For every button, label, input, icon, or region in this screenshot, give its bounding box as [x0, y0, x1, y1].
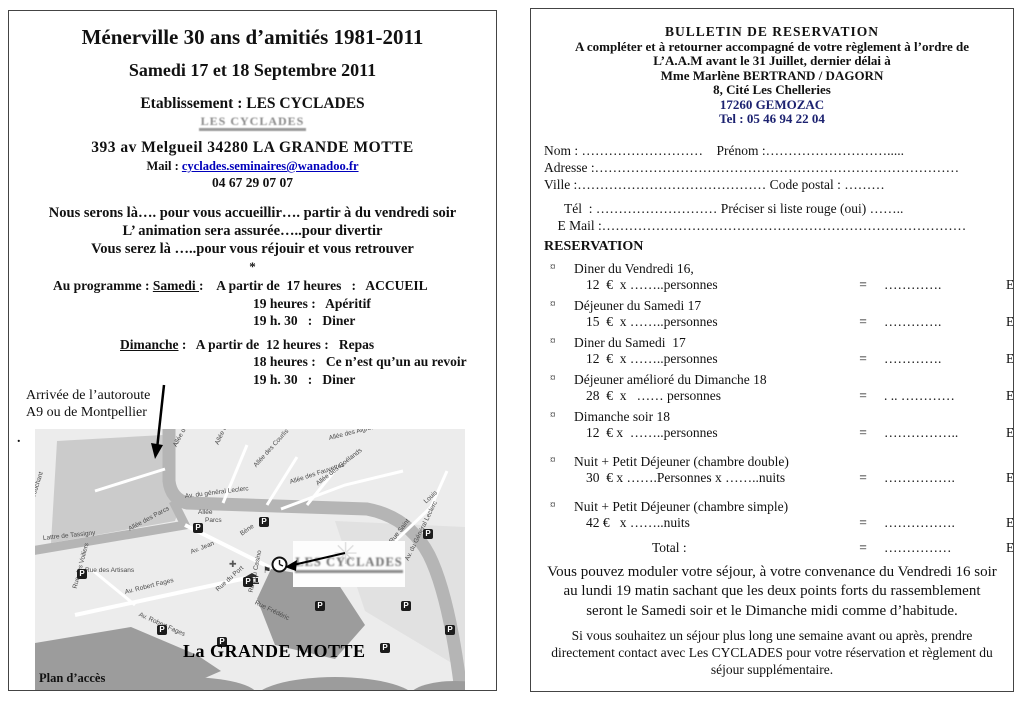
item-label-row: ¤Diner du Samedi 17: [544, 335, 1000, 351]
program-text: Dimanche: [120, 337, 179, 352]
program-text: 18 heures : Ce n’est qu’un au revoir: [253, 354, 467, 369]
item-value-row: 12 € x ……..personnes=………….Euros: [544, 351, 1000, 367]
program-text: : A partir de 17 heures : ACCUEIL: [199, 278, 428, 293]
item-value-row: 42 € x ……..nuits=…………….Euros: [544, 515, 1000, 531]
program-text: 19 h. 30 : Diner: [253, 313, 355, 328]
amount-dots: ………….: [884, 351, 1006, 367]
arrival-line: A9 ou de Montpellier: [26, 404, 150, 421]
equals-sign: =: [842, 470, 884, 486]
street-label: Allée: [198, 509, 212, 516]
access-map: ✚ ⚑ ✳ LES CYCLADES La GRANDE MOTTE Plan …: [35, 429, 465, 691]
amount-dots: ……………..: [884, 425, 1006, 441]
mail-line: Mail : cyclades.seminaires@wanadoo.fr: [25, 159, 480, 174]
program-row: 18 heures : Ce n’est qu’un au revoir: [25, 353, 480, 371]
item-value-row: 15 € x ……..personnes=………….Euros: [544, 314, 1000, 330]
amount-dots: ………….: [884, 277, 1006, 293]
item-label: Déjeuner du Samedi 17: [574, 298, 1006, 314]
program-row: 19 h. 30 : Diner: [25, 312, 480, 330]
item-label-row: ¤Diner du Vendredi 16,: [544, 261, 1000, 277]
street-label: Rue des Artisans: [85, 567, 134, 574]
parking-icon: P: [77, 569, 87, 579]
map-caption: Plan d’accès: [39, 671, 105, 686]
cyclades-map-callout: ✳ LES CYCLADES: [293, 541, 405, 587]
item-label: Dimanche soir 18: [574, 409, 1006, 425]
currency-label: Euros: [1006, 388, 1014, 404]
venue-address: 393 av Melgueil 34280 LA GRANDE MOTTE: [25, 139, 480, 157]
parking-icon: P: [315, 601, 325, 611]
header-line: BULLETIN DE RESERVATION: [544, 25, 1000, 40]
right-page: BULLETIN DE RESERVATIONA compléter et à …: [530, 8, 1014, 692]
event-title: Ménerville 30 ans d’amitiés 1981-2011: [25, 25, 480, 50]
venue-phone: 04 67 29 07 07: [25, 175, 480, 191]
item-quantity: 12 € x ……..personnes: [574, 425, 842, 441]
program-row: 19 heures : Apéritif: [25, 295, 480, 313]
reservation-item: ¤Dimanche soir 1812 € x ……..personnes=………: [544, 409, 1000, 441]
currency-label: Euros: [1006, 351, 1014, 367]
intro-paragraph: Nous serons là…. pour vous accueillir…. …: [25, 204, 480, 258]
closing-paragraph-2: Si vous souhaitez un séjour plus long un…: [544, 627, 1000, 678]
reservation-item: ¤Nuit + Petit Déjeuner (chambre double)3…: [544, 454, 1000, 486]
parking-icon: P: [380, 643, 390, 653]
equals-sign: =: [842, 515, 884, 531]
currency-label: Euros: [1006, 425, 1014, 441]
currency-label: Euros: [1006, 470, 1014, 486]
program-schedule: Au programme : Samedi : A partir de 17 h…: [25, 277, 480, 388]
currency-label: Euros: [1006, 515, 1014, 531]
currency-label: Euros: [1006, 277, 1014, 293]
event-dates: Samedi 17 et 18 Septembre 2011: [25, 60, 480, 81]
item-value-row: 12 € x ……..personnes=………….Euros: [544, 277, 1000, 293]
amount-dots: ……………: [884, 540, 1006, 556]
intro-line: Nous serons là…. pour vous accueillir…. …: [25, 204, 480, 222]
closing-paragraph-1: Vous pouvez moduler votre séjour, à votr…: [544, 563, 1000, 622]
header-line: Mme Marlène BERTRAND / DAGORN: [544, 69, 1000, 84]
reservation-heading: RESERVATION: [544, 239, 1000, 255]
stray-dot: .: [17, 431, 21, 447]
street-label: Parcs: [205, 517, 222, 524]
map-city-label: La GRANDE MOTTE: [183, 641, 366, 662]
amount-dots: ………….: [884, 314, 1006, 330]
item-bullet: ¤: [544, 409, 574, 425]
item-quantity: 28 € x …… personnes: [574, 388, 842, 404]
cross-icon: ✚: [229, 559, 237, 570]
item-label: Déjeuner amélioré du Dimanche 18: [574, 372, 1006, 388]
reservation-item: ¤Nuit + Petit Déjeuner (chambre simple)4…: [544, 499, 1000, 531]
item-label: Nuit + Petit Déjeuner (chambre simple): [574, 499, 1006, 515]
equals-sign: =: [842, 351, 884, 367]
equals-sign: =: [842, 388, 884, 404]
header-line: A compléter et à retourner accompagné de…: [544, 40, 1000, 55]
reservation-item: ¤Déjeuner amélioré du Dimanche 1828 € x …: [544, 372, 1000, 404]
item-spacer: [544, 314, 574, 330]
equals-sign: =: [842, 540, 884, 556]
item-quantity: 12 € x ……..personnes: [574, 277, 842, 293]
amount-dots: . .. …………: [884, 388, 1006, 404]
program-text: : A partir de 12 heures : Repas: [179, 337, 375, 352]
parking-icon: P: [193, 523, 203, 533]
parking-icon: P: [445, 625, 455, 635]
program-row: Dimanche : A partir de 12 heures : Repas: [25, 336, 480, 354]
reservation-items: ¤Diner du Vendredi 16,12 € x ……..personn…: [544, 261, 1000, 556]
item-label-row: ¤Nuit + Petit Déjeuner (chambre simple): [544, 499, 1000, 515]
program-row: Au programme : Samedi : A partir de 17 h…: [25, 277, 480, 295]
item-label: Nuit + Petit Déjeuner (chambre double): [574, 454, 1006, 470]
item-quantity: 15 € x ……..personnes: [574, 314, 842, 330]
item-bullet: ¤: [544, 261, 574, 277]
item-quantity: 12 € x ……..personnes: [574, 351, 842, 367]
header-line: L’A.A.M avant le 31 Juillet, dernier dél…: [544, 54, 1000, 69]
form-line: Nom : ……………………… Prénom :……………………….....: [544, 142, 1000, 159]
item-spacer: [544, 470, 574, 486]
intro-line: L’ animation sera assurée…..pour diverti…: [25, 222, 480, 240]
currency-label: Euros: [1006, 314, 1014, 330]
program-text: 19 heures : Apéritif: [253, 296, 371, 311]
item-spacer: [544, 425, 574, 441]
parking-icon: P: [243, 577, 253, 587]
total-spacer: [544, 540, 574, 556]
form-line: Tél : ……………………… Préciser si liste rouge …: [544, 200, 1000, 217]
item-spacer: [544, 388, 574, 404]
program-text: Samedi: [153, 278, 199, 293]
program-text: 19 h. 30 : Diner: [253, 372, 355, 387]
item-spacer: [544, 515, 574, 531]
item-value-row: 12 € x ……..personnes=……………..Euros: [544, 425, 1000, 441]
header-line: 8, Cité Les Chelleries: [544, 83, 1000, 98]
contact-form-lines: Nom : ……………………… Prénom :……………………….....Ad…: [544, 142, 1000, 234]
reservation-item: ¤Diner du Vendredi 16,12 € x ……..personn…: [544, 261, 1000, 293]
form-line: Ville :…………………………………… Code postal : ………: [544, 176, 1000, 193]
form-line: Adresse :………………………………………………………………………: [544, 159, 1000, 176]
item-label: Diner du Vendredi 16,: [574, 261, 1006, 277]
form-line: E Mail :………………………………………………………………………: [544, 217, 1000, 234]
item-label-row: ¤Déjeuner amélioré du Dimanche 18: [544, 372, 1000, 388]
total-row: Total :=……………Euros: [544, 540, 1000, 556]
parking-icon: P: [157, 625, 167, 635]
item-bullet: ¤: [544, 298, 574, 314]
parking-icon: P: [423, 529, 433, 539]
left-page: Ménerville 30 ans d’amitiés 1981-2011 Sa…: [8, 10, 497, 691]
header-line: 17260 GEMOZAC: [544, 98, 1000, 113]
item-spacer: [544, 277, 574, 293]
separator-star: *: [25, 261, 480, 273]
arrival-line: Arrivée de l’autoroute: [26, 387, 150, 404]
item-label-row: ¤Dimanche soir 18: [544, 409, 1000, 425]
currency-label: Euros: [1006, 540, 1014, 556]
form-gap: [544, 193, 1000, 200]
cyclades-logo-map: LES CYCLADES: [295, 555, 403, 573]
item-value-row: 30 € x …….Personnes x ……..nuits=…………….Eu…: [544, 470, 1000, 486]
equals-sign: =: [842, 277, 884, 293]
equals-sign: =: [842, 314, 884, 330]
establishment-line: Etablissement : LES CYCLADES: [25, 95, 480, 113]
item-bullet: ¤: [544, 335, 574, 351]
item-label-row: ¤Nuit + Petit Déjeuner (chambre double): [544, 454, 1000, 470]
item-bullet: ¤: [544, 372, 574, 388]
header-line: Tel : 05 46 94 22 04: [544, 112, 1000, 127]
flag-icon: ⚑: [263, 565, 271, 576]
arrival-note: Arrivée de l’autorouteA9 ou de Montpelli…: [26, 387, 150, 421]
amount-dots: …………….: [884, 515, 1006, 531]
program-row: 19 h. 30 : Diner: [25, 371, 480, 389]
equals-sign: =: [842, 425, 884, 441]
item-bullet: ¤: [544, 499, 574, 515]
total-label: Total :: [574, 540, 842, 556]
item-value-row: 28 € x …… personnes=. .. …………Euros: [544, 388, 1000, 404]
item-bullet: ¤: [544, 454, 574, 470]
program-text: Au programme :: [53, 278, 153, 293]
mail-link[interactable]: cyclades.seminaires@wanadoo.fr: [182, 159, 359, 173]
item-label: Diner du Samedi 17: [574, 335, 1006, 351]
item-label-row: ¤Déjeuner du Samedi 17: [544, 298, 1000, 314]
item-quantity: 30 € x …….Personnes x ……..nuits: [574, 470, 842, 486]
item-quantity: 42 € x ……..nuits: [574, 515, 842, 531]
parking-icon: P: [259, 517, 269, 527]
clock-landmark-icon: [271, 556, 288, 573]
amount-dots: …………….: [884, 470, 1006, 486]
parking-icon: P: [401, 601, 411, 611]
item-spacer: [544, 351, 574, 367]
reservation-header: BULLETIN DE RESERVATIONA compléter et à …: [544, 25, 1000, 127]
intro-line: Vous serez là …..pour vous réjouir et vo…: [25, 240, 480, 258]
reservation-item: ¤Diner du Samedi 1712 € x ……..personnes=…: [544, 335, 1000, 367]
cyclades-logo-small: LES CYCLADES: [25, 114, 480, 129]
mail-label: Mail :: [146, 159, 181, 173]
scanned-document: Ménerville 30 ans d’amitiés 1981-2011 Sa…: [0, 0, 1028, 718]
reservation-item: ¤Déjeuner du Samedi 1715 € x ……..personn…: [544, 298, 1000, 330]
